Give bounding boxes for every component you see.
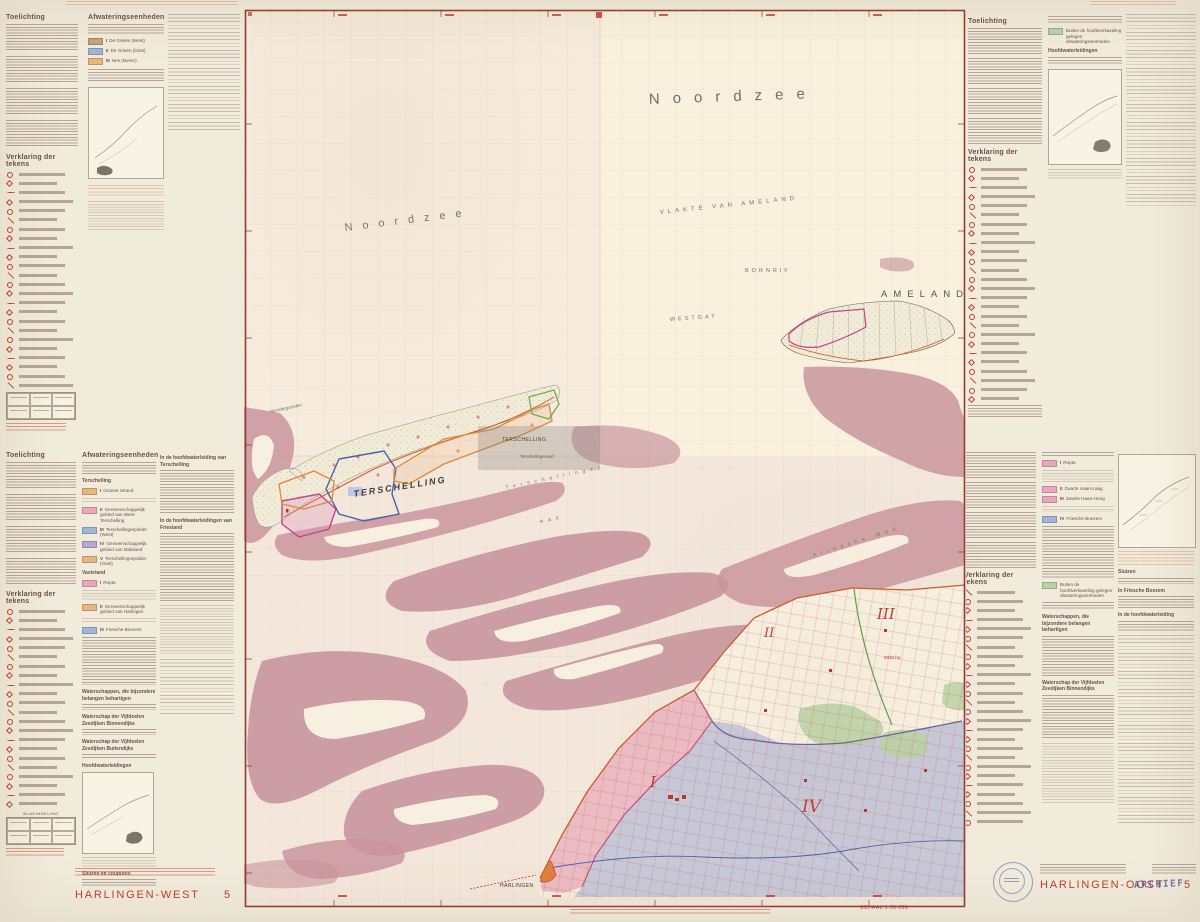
unit-label: IIGemeenschappelijk gebied van West-Ters…: [100, 507, 156, 524]
legend-row: [968, 331, 1042, 337]
legend-row: [6, 263, 78, 269]
legend-row: [964, 754, 1036, 760]
unit-label: IVGemeenschappelijk gebied van Midsland: [100, 541, 156, 552]
legend-symbol-icon: [968, 378, 977, 382]
text-block: [82, 618, 156, 623]
legend-row-text: [977, 738, 1015, 741]
legend-row-text: [977, 719, 1031, 722]
brandaris-lighthouse: [286, 509, 289, 513]
legend-row-text: [981, 360, 1019, 363]
text-block: [88, 69, 164, 83]
legend-row-text: [981, 315, 1027, 318]
legend-row-text: [977, 756, 1015, 759]
legend-row-text: [981, 388, 1027, 391]
legend-row: [6, 235, 78, 241]
legend-row: [6, 654, 76, 660]
legend-symbol-icon: [968, 314, 977, 318]
legend-row-text: [977, 692, 1023, 695]
legend-row-text: [19, 310, 57, 313]
legend-row-text: [981, 342, 1019, 345]
legend-symbol-icon: [968, 241, 977, 245]
legend-panel-mid-left: Toelichting Verklaring der tekens BLADIN…: [6, 450, 242, 898]
legend-row-text: [977, 701, 1015, 704]
color-chip: [82, 527, 97, 534]
text-block: [1048, 16, 1122, 24]
text-block: [968, 58, 1042, 84]
legend-row: [968, 368, 1042, 374]
legend-row-text: [981, 296, 1027, 299]
legend-row: [964, 791, 1036, 797]
roman-numeral-iv: IV: [801, 797, 823, 817]
legend-row-text: [977, 710, 1023, 713]
legend-row: [6, 636, 76, 642]
legend-row: [968, 377, 1042, 383]
legend-row: [964, 598, 1036, 604]
legend-row: [6, 764, 76, 770]
inset-map: [1048, 69, 1122, 165]
legend-symbol-icon: [6, 365, 15, 369]
legend-row-text: [19, 619, 57, 622]
legend-symbol-icon: [968, 277, 977, 281]
village-label-terschelling: TERSCHELLING: [502, 437, 546, 443]
text-block: [160, 470, 234, 514]
legend-symbol-icon: [968, 286, 977, 290]
unit-label: IIGemeenschappelijk gebied van Harlingen: [100, 604, 156, 615]
title-note-lines: [1152, 864, 1196, 874]
text-block: [6, 56, 78, 84]
table-cell: [7, 393, 30, 406]
table-cell: [52, 406, 75, 419]
faded-stamp-marks: [1090, 1, 1176, 6]
legend-row-text: [977, 646, 1015, 649]
legend-row: [968, 295, 1042, 301]
notes-ruled-area: [1118, 635, 1194, 825]
unit-swatch-row: IIGemeenschappelijk gebied van West-Ters…: [82, 507, 156, 524]
legend-row-text: [19, 237, 57, 240]
legend-row: [964, 764, 1036, 770]
legend-panel-mid-right: Verklaring der tekens IRopta IIZwarte Ha…: [964, 450, 1196, 890]
unit-swatch-row: Buiten de hoofdverkaveling gelegen afwat…: [1048, 28, 1122, 45]
legend-symbol-icon: [6, 328, 15, 332]
unit-label: IDe Grieën (West): [106, 38, 145, 44]
subheader-vasteland: Vasteland: [82, 570, 156, 577]
color-chip: [82, 488, 97, 495]
legend-row: [6, 737, 76, 743]
panel-header-verklaring: Verklaring der tekens: [6, 591, 76, 605]
legend-row: [964, 663, 1036, 669]
legend-row: [968, 258, 1042, 264]
legend-row: [6, 373, 78, 379]
subheader-sluizen: Sluizen: [1118, 569, 1194, 576]
legend-row: [968, 212, 1042, 218]
legend-symbol-icon: [6, 310, 15, 314]
legend-row-text: [19, 683, 73, 686]
legend-symbol-icon: [6, 301, 15, 305]
text-block: [968, 405, 1042, 417]
legend-row: [6, 327, 78, 333]
color-chip: [1042, 486, 1057, 493]
legend-row-text: [981, 278, 1027, 281]
legend-row: [964, 727, 1036, 733]
legend-row-text: [977, 609, 1015, 612]
legend-symbol-icon: [6, 738, 15, 742]
legend-row-text: [981, 269, 1019, 272]
legend-row: [6, 792, 76, 798]
notes-ruled-area: [160, 659, 234, 715]
legend-symbol-icon: [968, 250, 977, 254]
sheet-corner-mark: [596, 12, 602, 18]
legend-row-text: [19, 738, 65, 741]
unit-swatch-row: IIIZwarte Haan-Hoog: [1042, 496, 1114, 503]
text-block: [82, 704, 156, 710]
text-block: [88, 24, 164, 34]
unit-label: IIIZwarte Haan-Hoog: [1060, 496, 1105, 502]
legend-symbol-icon: [6, 200, 15, 204]
color-chip: [82, 604, 97, 611]
legend-row: [6, 626, 76, 632]
unit-swatch-row: IRopta: [82, 580, 156, 587]
legend-row: [6, 254, 78, 260]
legend-row-text: [981, 186, 1027, 189]
legend-symbol-icon: [6, 664, 15, 668]
legend-row-text: [981, 370, 1027, 373]
legend-row: [968, 359, 1042, 365]
panel-header-toelichting: Toelichting: [6, 14, 78, 21]
unit-swatch-row: VTerschellingerpolder (Oost): [82, 556, 156, 567]
legend-row-text: [981, 241, 1035, 244]
inset-sketch: [83, 773, 153, 853]
legend-symbol-icon: [6, 756, 15, 760]
panel-header-hoofdwaterleidingen: Hoofdwaterleidingen: [1048, 48, 1122, 55]
legend-row: [964, 617, 1036, 623]
legend-row: [6, 727, 76, 733]
legend-row: [6, 755, 76, 761]
legend-symbol-icon: [6, 264, 15, 268]
legend-row: [6, 691, 76, 697]
text-block: [6, 120, 78, 148]
panel-header-verklaring: Verklaring der tekens: [6, 154, 78, 168]
legend-row: [6, 718, 76, 724]
legend-symbol-icon: [6, 209, 15, 213]
legend-row: [6, 682, 76, 688]
legend-row-text: [977, 793, 1015, 796]
text-block: [1118, 551, 1194, 565]
text-block: [6, 24, 78, 52]
legend-row: [964, 782, 1036, 788]
text-block: [160, 533, 234, 601]
legend-row-text: [981, 305, 1019, 308]
legend-row: [968, 387, 1042, 393]
color-chip: [82, 541, 97, 548]
legend-row: [6, 700, 76, 706]
legend-row-text: [977, 682, 1015, 685]
legend-symbol-icon: [6, 282, 15, 286]
panel-header-afwatering: Afwateringseenheden: [82, 452, 156, 459]
legend-row: [964, 708, 1036, 714]
color-chip: [1042, 460, 1057, 467]
text-block: [82, 729, 156, 735]
scale-label: SCHAAL 1:50.000: [860, 905, 908, 911]
color-chip: [1042, 582, 1057, 589]
text-block: [1042, 602, 1114, 610]
subheader-hwl-friesland: In de hoofdwaterleidingen van Friesland: [160, 518, 234, 531]
unit-swatch-row: IIZwarte Haan-Laag: [1042, 486, 1114, 493]
legend-row-text: [19, 209, 65, 212]
legend-row: [6, 180, 78, 186]
text-block: [968, 28, 1042, 54]
text-block: [1118, 578, 1194, 584]
legend-row-text: [977, 591, 1015, 594]
legend-symbol-icon: [6, 627, 15, 631]
unit-label: IRopta: [100, 580, 116, 586]
text-block: [82, 637, 156, 685]
legend-row-text: [981, 223, 1027, 226]
legend-symbol-icon: [6, 190, 15, 194]
legend-row-text: [19, 637, 73, 640]
legend-row: [964, 672, 1036, 678]
legend-row-text: [977, 655, 1023, 658]
sheet-number-right: 5: [1184, 879, 1190, 891]
text-block: [6, 423, 66, 431]
subheader-ws-binnendijks: Waterschap der Vijfdeelen Zeedijken Binn…: [1042, 680, 1114, 693]
legend-symbol-icon: [6, 246, 15, 250]
legend-row: [6, 672, 76, 678]
legend-row: [968, 175, 1042, 181]
legend-row-text: [19, 264, 65, 267]
legend-row: [964, 635, 1036, 641]
text-block: [6, 494, 76, 522]
legend-row-text: [19, 610, 65, 613]
legend-row-text: [981, 324, 1019, 327]
notes-ruled-area: [1126, 14, 1196, 206]
legend-row-text: [19, 182, 57, 185]
legend-symbol-icon: [6, 255, 15, 259]
legend-row-text: [19, 775, 73, 778]
legend-row: [6, 281, 78, 287]
legend-row-text: [19, 338, 73, 341]
color-chip: [1048, 28, 1063, 35]
legend-row: [6, 364, 78, 370]
legend-symbol-icon: [6, 765, 15, 769]
roman-numeral-iii: III: [876, 605, 896, 623]
legend-symbol-icon: [6, 683, 15, 687]
legend-row-text: [19, 365, 57, 368]
legend-row-text: [19, 720, 65, 723]
legend-row: [968, 184, 1042, 190]
legend-symbol-icon: [968, 204, 977, 208]
legend-row-text: [981, 379, 1035, 382]
legend-row-text: [19, 292, 73, 295]
text-block: [1042, 470, 1114, 482]
map-area: Noordzee Noordzee VLAKTE VAN AMELAND BOR…: [244, 9, 966, 909]
unit-swatch-row: IVGemeenschappelijk gebied van Midsland: [82, 541, 156, 552]
legend-row: [964, 819, 1036, 825]
text-block: [1118, 621, 1194, 631]
legend-row-text: [19, 274, 57, 277]
text-block: [1048, 57, 1122, 65]
legend-row: [964, 745, 1036, 751]
legend-row: [6, 783, 76, 789]
unit-swatch-row: Buiten de hoofdverkaveling gelegen afwat…: [1042, 582, 1114, 599]
legend-row: [968, 304, 1042, 310]
legend-symbol-icon: [6, 273, 15, 277]
legend-row: [968, 285, 1042, 291]
legend-row: [6, 272, 78, 278]
text-block: [964, 512, 1036, 538]
legend-row: [6, 645, 76, 651]
legend-symbol-icon: [6, 356, 15, 360]
inset-sketch: [1119, 455, 1195, 547]
legend-row-text: [977, 811, 1031, 814]
legend-symbol-icon: [6, 181, 15, 185]
text-block: [82, 590, 156, 600]
subheader-waterschappen: Waterschappen, die bijzondere belangen b…: [82, 689, 156, 702]
legend-row: [968, 194, 1042, 200]
color-chip: [82, 580, 97, 587]
unit-swatch-row: IIDe Grieën (Oost): [88, 48, 164, 55]
legend-symbol-icon: [968, 296, 977, 300]
legend-symbol-icon: [6, 291, 15, 295]
unit-swatch-row: IGroene Strand: [82, 488, 156, 495]
legend-row-text: [19, 729, 73, 732]
text-block: [964, 542, 1036, 568]
roman-numeral-ii: II: [763, 626, 775, 641]
legend-row-text: [19, 356, 65, 359]
legend-symbol-icon: [6, 374, 15, 378]
legend-symbol-icon: [968, 176, 977, 180]
text-block: [82, 754, 156, 759]
text-block: [82, 857, 156, 867]
legend-symbol-icon: [6, 172, 15, 176]
legend-row: [6, 746, 76, 752]
inset-map: [88, 87, 164, 179]
text-block: [1118, 596, 1194, 608]
legend-row: [6, 663, 76, 669]
legend-row: [6, 171, 78, 177]
text-block: [6, 462, 76, 490]
legend-symbol-icon: [6, 236, 15, 240]
legend-symbol-icon: [968, 342, 977, 346]
legend-row-text: [977, 802, 1023, 805]
legend-row: [964, 810, 1036, 816]
legend-row-text: [19, 375, 65, 378]
legend-row: [964, 644, 1036, 650]
legend-row-text: [981, 333, 1035, 336]
legend-row-text: [981, 351, 1027, 354]
text-block: [82, 498, 156, 503]
unit-label: IIZwarte Haan-Laag: [1060, 486, 1103, 492]
area-label-5830ha: 5830 ha: [884, 655, 901, 660]
sheet-corner-mark: [248, 12, 252, 16]
unit-label: IIITerschellingerpolder (West): [100, 527, 156, 538]
legend-symbol-icon: [6, 774, 15, 778]
legend-symbol-icon: [968, 351, 977, 355]
library-stamp: [993, 862, 1033, 902]
legend-row: [968, 240, 1042, 246]
legend-row-text: [19, 665, 65, 668]
legend-row: [6, 336, 78, 342]
legend-symbol-icon: [6, 655, 15, 659]
legend-row: [968, 276, 1042, 282]
color-chip: [88, 38, 103, 45]
legend-row: [964, 607, 1036, 613]
unit-swatch-row: IVFriesche Boezem: [1042, 516, 1114, 523]
legend-row: [968, 230, 1042, 236]
unit-label: IIIFriesche Boezem: [100, 627, 142, 633]
subheader-waterschappen: Waterschappen, die bijzondere belangen b…: [1042, 614, 1114, 634]
map-canvas: Noordzee Noordzee VLAKTE VAN AMELAND BOR…: [244, 9, 966, 909]
legend-row: [968, 341, 1042, 347]
legend-row-text: [977, 774, 1015, 777]
legend-row: [6, 300, 78, 306]
legend-row-text: [19, 655, 57, 658]
unit-label: Buiten de hoofdverkaveling gelegen afwat…: [1060, 582, 1114, 599]
legend-symbol-icon: [968, 323, 977, 327]
unit-swatch-row: IIITerschellingerpolder (West): [82, 527, 156, 538]
table-cell: [52, 831, 75, 844]
unit-label: VTerschellingerpolder (Oost): [100, 556, 156, 567]
legend-symbol-icon: [968, 259, 977, 263]
unit-swatch-row: IRopta: [1042, 460, 1114, 467]
legend-row-text: [19, 747, 57, 750]
unit-label: IIINes (Buren): [106, 58, 137, 64]
table-cell: [7, 831, 30, 844]
bladindeling-label: BLADINDELING: [6, 811, 76, 816]
legend-row-text: [19, 255, 57, 258]
legend-row-text: [19, 301, 65, 304]
legend-row: [964, 626, 1036, 632]
legend-row-text: [19, 766, 57, 769]
text-block: [1042, 506, 1114, 512]
inset-sketch: [1049, 70, 1121, 164]
legend-row-text: [19, 802, 57, 805]
legend-row-text: [19, 228, 65, 231]
library-stamp-inner: [999, 868, 1025, 894]
title-note-lines: [1040, 864, 1126, 874]
legend-row-text: [981, 250, 1019, 253]
title-note-lines: [75, 868, 215, 877]
inset-map: [82, 772, 154, 854]
subheader-in-hoofdwaterleiding: In de hoofdwaterleiding: [1118, 612, 1194, 619]
inset-map: [1118, 454, 1196, 548]
legend-symbol-icon: [6, 618, 15, 622]
panel-header-verklaring: Verklaring der tekens: [964, 572, 1036, 586]
legend-row-text: [19, 347, 57, 350]
table-cell: [52, 393, 75, 406]
legend-symbol-icon: [6, 227, 15, 231]
text-block: [1042, 636, 1114, 676]
legend-row: [968, 396, 1042, 402]
legend-row: [968, 350, 1042, 356]
subheader-ws-binnendijks: Waterschap der Vijfdeelen Zeedijken Binn…: [82, 714, 156, 727]
legend-row: [968, 203, 1042, 209]
sheet-number-left: 5: [224, 889, 230, 901]
text-block: [964, 452, 1036, 478]
text-block: [6, 526, 76, 554]
unit-swatch-row: IIINes (Buren): [88, 58, 164, 65]
table-cell: [7, 818, 30, 831]
legend-row-text: [19, 283, 65, 286]
tape-patch: [478, 426, 600, 470]
inset-sketch: [89, 88, 163, 178]
faded-stamp-marks: [66, 1, 238, 7]
table-cell: [30, 406, 53, 419]
text-block: [964, 482, 1036, 508]
legend-row: [6, 290, 78, 296]
legend-row-text: [981, 177, 1019, 180]
legend-symbol-icon: [6, 347, 15, 351]
legend-symbol-icon: [6, 784, 15, 788]
